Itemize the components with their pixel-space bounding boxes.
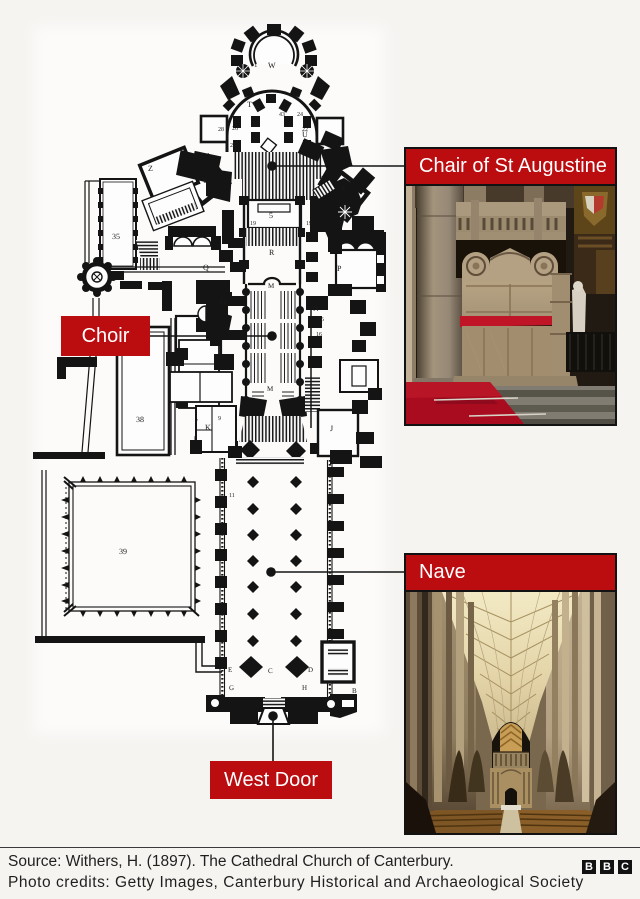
svg-text:7: 7	[195, 419, 198, 425]
svg-text:P: P	[337, 264, 342, 273]
svg-text:16: 16	[316, 332, 322, 338]
svg-text:K: K	[205, 423, 211, 432]
svg-text:X: X	[340, 184, 346, 193]
svg-text:N: N	[313, 304, 319, 313]
svg-text:R: R	[269, 248, 275, 257]
svg-text:Y: Y	[202, 176, 208, 185]
svg-text:8: 8	[194, 436, 197, 442]
svg-text:27: 27	[230, 143, 236, 149]
svg-text:24: 24	[297, 112, 303, 118]
svg-text:O: O	[220, 298, 226, 307]
svg-text:35: 35	[112, 232, 120, 241]
svg-text:26: 26	[232, 126, 238, 132]
svg-text:9: 9	[218, 416, 221, 422]
svg-text:D: D	[308, 666, 313, 674]
svg-text:39: 39	[119, 547, 127, 556]
svg-text:1: 1	[254, 61, 258, 69]
svg-text:M: M	[267, 385, 274, 393]
svg-text:19: 19	[250, 221, 256, 227]
svg-text:Q: Q	[203, 263, 209, 272]
svg-text:B: B	[352, 687, 357, 695]
svg-text:5: 5	[269, 211, 273, 220]
svg-text:15: 15	[318, 317, 324, 323]
svg-text:C: C	[268, 667, 273, 675]
svg-text:22: 22	[302, 127, 308, 133]
svg-text:E: E	[228, 666, 232, 674]
svg-text:H: H	[302, 684, 307, 692]
svg-text:J: J	[330, 424, 333, 433]
svg-text:21: 21	[288, 137, 294, 143]
svg-text:38: 38	[136, 415, 144, 424]
svg-text:43: 43	[279, 112, 285, 118]
svg-text:Z: Z	[148, 164, 153, 173]
svg-text:M: M	[268, 282, 275, 290]
svg-text:G: G	[229, 684, 234, 692]
svg-text:W: W	[268, 61, 276, 70]
svg-text:19: 19	[306, 221, 312, 227]
svg-text:T: T	[247, 100, 252, 109]
svg-text:28: 28	[218, 127, 224, 133]
svg-text:11: 11	[229, 493, 235, 499]
